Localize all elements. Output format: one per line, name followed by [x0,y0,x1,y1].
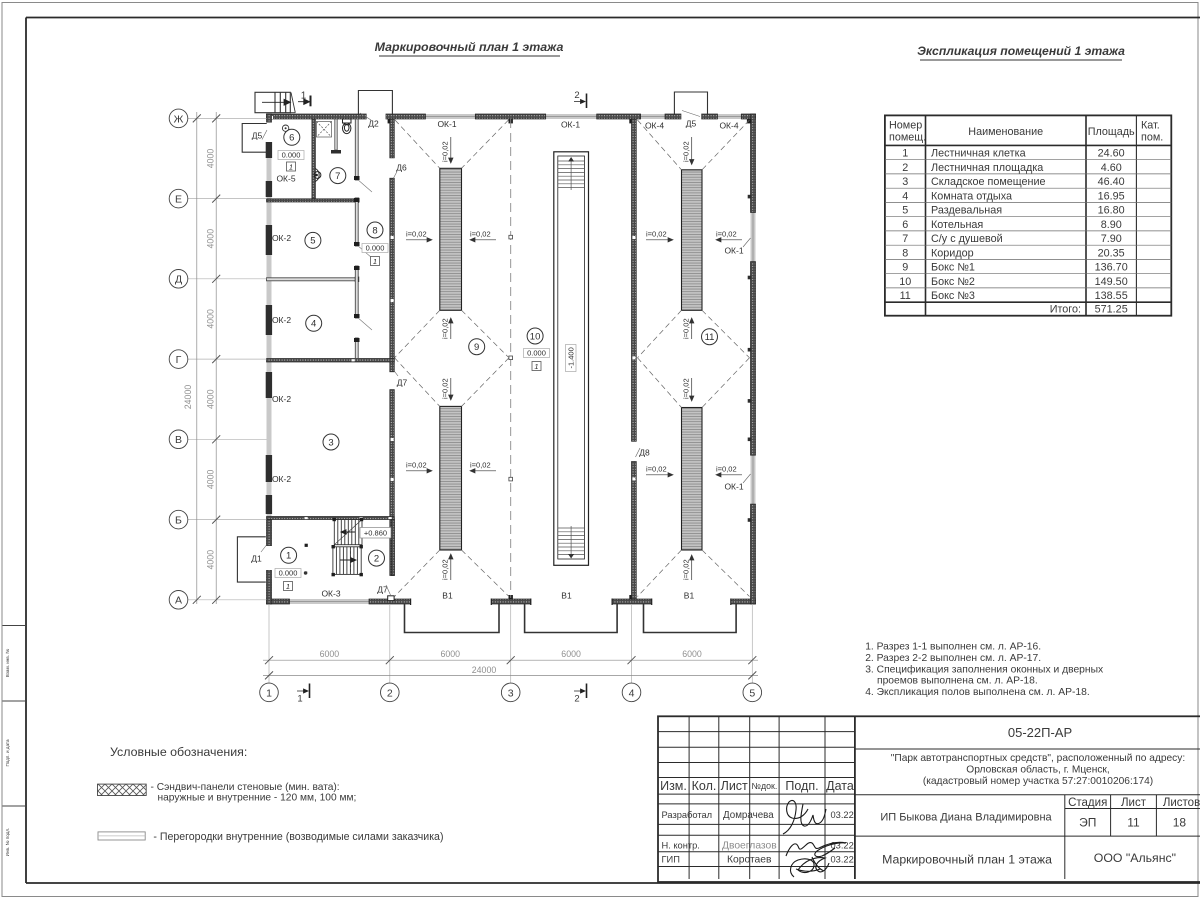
svg-text:В1: В1 [684,591,695,601]
svg-text:Г: Г [176,354,182,366]
svg-text:11: 11 [900,290,911,302]
svg-text:Д6: Д6 [396,163,407,173]
svg-text:6000: 6000 [320,649,340,659]
svg-text:3: 3 [902,176,908,188]
svg-text:ОК-1: ОК-1 [437,119,456,129]
svg-text:ОК-3: ОК-3 [321,589,340,599]
svg-text:"Парк автотранспортных средств: "Парк автотранспортных средств", располо… [891,753,1185,764]
svg-text:В: В [175,434,182,446]
svg-text:ОК-1: ОК-1 [724,482,743,492]
svg-text:2: 2 [574,694,579,705]
svg-text:2: 2 [374,553,379,564]
svg-text:46.40: 46.40 [1098,176,1125,188]
svg-text:1: 1 [289,162,293,171]
svg-text:пом.: пом. [1141,132,1163,144]
svg-text:ОК-2: ОК-2 [272,474,291,484]
svg-text:Д2: Д2 [368,119,379,129]
svg-text:Домрачева: Домрачева [723,810,774,821]
svg-text:8: 8 [902,247,908,259]
svg-text:Д7: Д7 [397,378,408,388]
svg-text:03.22: 03.22 [831,855,854,865]
svg-text:Д8: Д8 [639,448,650,458]
svg-text:Инв. № подл.: Инв. № подл. [5,828,10,857]
svg-text:Лестничная площадка: Лестничная площадка [931,162,1043,174]
svg-text:4: 4 [902,190,908,202]
svg-text:ОК-1: ОК-1 [561,120,580,130]
svg-text:8.90: 8.90 [1101,219,1122,231]
svg-text:Кол.: Кол. [692,779,717,793]
svg-text:В1: В1 [561,591,572,601]
svg-text:4.60: 4.60 [1101,162,1122,174]
svg-text:i=0,02: i=0,02 [406,461,427,470]
svg-text:i=0,02: i=0,02 [682,559,691,580]
svg-text:ОК-2: ОК-2 [272,394,291,404]
svg-text:Н. контр.: Н. контр. [662,841,700,851]
svg-text:0.000: 0.000 [527,349,546,358]
svg-text:Изм.: Изм. [660,779,687,793]
svg-text:1: 1 [373,257,377,266]
svg-text:138.55: 138.55 [1095,290,1128,302]
svg-text:ОК-2: ОК-2 [272,233,291,243]
svg-text:7: 7 [335,171,340,182]
svg-text:помещ.: помещ. [889,132,926,144]
svg-text:Лестничная клетка: Лестничная клетка [931,148,1026,160]
svg-text:5: 5 [749,687,755,699]
svg-text:Условные обозначения:: Условные обозначения: [110,745,247,759]
svg-text:Маркировочный план 1 этажа: Маркировочный план 1 этажа [882,853,1052,867]
svg-text:Бокс №3: Бокс №3 [931,290,975,302]
svg-text:Е: Е [175,194,182,206]
svg-text:-1.400: -1.400 [567,347,576,368]
svg-text:4000: 4000 [206,470,216,490]
svg-text:0.000: 0.000 [279,569,298,578]
svg-text:24000: 24000 [183,385,193,410]
svg-text:1: 1 [266,687,272,699]
svg-text:9: 9 [474,342,479,353]
svg-text:Комната отдыха: Комната отдыха [931,190,1012,202]
svg-text:Ж: Ж [174,113,184,125]
svg-text:i=0,02: i=0,02 [441,318,450,339]
svg-text:Подп.: Подп. [785,779,818,793]
svg-text:0.000: 0.000 [282,151,301,160]
svg-text:7: 7 [902,233,908,245]
svg-text:4. Экспликация полов выполнена: 4. Экспликация полов выполнена см. л. АР… [865,687,1090,698]
svg-text:№док.: №док. [752,781,778,791]
svg-text:i=0,02: i=0,02 [441,559,450,580]
svg-text:6: 6 [289,133,294,144]
svg-text:i=0,02: i=0,02 [682,141,691,162]
svg-text:1: 1 [286,582,290,591]
svg-text:11: 11 [1127,816,1140,830]
svg-text:Кат.: Кат. [1141,120,1160,132]
svg-text:ОК-1: ОК-1 [724,246,743,256]
svg-text:Лист: Лист [721,779,748,793]
svg-text:- Перегородки внутренние (возв: - Перегородки внутренние (возводимые сил… [153,831,443,843]
svg-text:11: 11 [705,332,715,343]
svg-text:Площадь: Площадь [1088,126,1135,138]
svg-text:Лист: Лист [1121,797,1147,809]
svg-text:24.60: 24.60 [1098,148,1125,160]
svg-text:3: 3 [328,437,333,448]
svg-text:ОК-4: ОК-4 [645,121,664,131]
svg-text:Взам. инв. №: Взам. инв. № [5,649,10,678]
svg-text:Коридор: Коридор [931,247,974,259]
svg-text:проемов выполнена см. л. АР-18: проемов выполнена см. л. АР-18. [877,675,1038,686]
svg-text:Наименование: Наименование [968,126,1043,138]
svg-text:- Сэндвич-панели стеновые (мин: - Сэндвич-панели стеновые (мин. вата): [151,782,340,793]
svg-text:2: 2 [387,687,393,699]
svg-text:Б: Б [175,515,182,527]
svg-text:наружные и внутренние - 120 мм: наружные и внутренние - 120 мм, 100 мм; [158,793,357,804]
svg-text:Котельная: Котельная [931,219,983,231]
svg-text:4000: 4000 [206,309,216,329]
svg-text:3. Спецификация заполнения око: 3. Спецификация заполнения оконных и две… [865,664,1104,676]
svg-text:i=0,02: i=0,02 [716,465,737,474]
svg-text:136.70: 136.70 [1095,262,1128,274]
svg-text:Стадия: Стадия [1068,797,1107,809]
svg-text:6000: 6000 [441,649,461,659]
svg-text:Бокс №1: Бокс №1 [931,262,975,274]
svg-text:4000: 4000 [206,149,216,169]
svg-text:1: 1 [286,551,291,562]
svg-text:6: 6 [902,219,908,231]
svg-text:4000: 4000 [206,389,216,409]
svg-text:i=0,02: i=0,02 [716,230,737,239]
svg-text:1: 1 [534,362,538,371]
svg-text:10: 10 [530,331,541,342]
svg-text:2: 2 [902,162,908,174]
svg-text:1: 1 [902,148,908,160]
svg-text:4: 4 [311,319,316,330]
svg-text:05-22П-АР: 05-22П-АР [1008,725,1072,740]
svg-text:4: 4 [629,687,635,699]
svg-text:3: 3 [508,687,514,699]
svg-text:10: 10 [899,276,911,288]
svg-text:5: 5 [902,205,908,217]
svg-text:1: 1 [297,694,302,705]
svg-text:Коротаев: Коротаев [727,855,772,866]
svg-text:16.80: 16.80 [1098,205,1125,217]
svg-text:Двоеглазов: Двоеглазов [722,841,777,852]
svg-text:+0.860: +0.860 [364,529,387,538]
svg-text:Д5: Д5 [252,131,263,141]
svg-text:i=0,02: i=0,02 [470,230,491,239]
svg-text:0.000: 0.000 [366,244,385,253]
svg-text:5: 5 [310,236,315,247]
svg-text:20.35: 20.35 [1098,247,1125,259]
svg-text:1. Разрез 1-1 выполнен см. л.: 1. Разрез 1-1 выполнен см. л. АР-16. [865,642,1041,653]
svg-text:ОК-5: ОК-5 [276,174,295,184]
svg-text:571.25: 571.25 [1095,304,1128,316]
svg-text:2: 2 [574,90,579,101]
svg-text:ИП Быкова Диана Владимировна: ИП Быкова Диана Владимировна [880,812,1052,824]
svg-text:ЭП: ЭП [1079,816,1096,830]
svg-text:ОК-2: ОК-2 [272,315,291,325]
svg-text:Листов: Листов [1163,797,1200,809]
svg-text:Дата: Дата [826,779,854,793]
svg-text:149.50: 149.50 [1095,276,1128,288]
svg-text:Орловская область, г. Мценск,: Орловская область, г. Мценск, [966,764,1109,776]
svg-text:Разработал: Разработал [662,810,713,820]
svg-text:7.90: 7.90 [1101,233,1122,245]
svg-text:6000: 6000 [561,649,581,659]
svg-text:03.22: 03.22 [831,810,854,820]
svg-text:9: 9 [902,262,908,274]
svg-text:Итого:: Итого: [1050,304,1081,316]
svg-text:18: 18 [1173,816,1187,830]
svg-text:i=0,02: i=0,02 [646,230,667,239]
svg-text:Д5: Д5 [686,119,697,129]
svg-text:ОК-4: ОК-4 [719,121,738,131]
svg-text:i=0,02: i=0,02 [441,378,450,399]
svg-text:2. Разрез 2-2 выполнен см. л.: 2. Разрез 2-2 выполнен см. л. АР-17. [865,653,1041,664]
svg-text:i=0,02: i=0,02 [406,230,427,239]
svg-text:ГИП: ГИП [662,855,680,865]
svg-text:Д: Д [175,274,182,286]
svg-text:А: А [175,595,182,607]
svg-text:6000: 6000 [682,649,702,659]
svg-text:(кадастровый номер участка 57:: (кадастровый номер участка 57:27:0010206… [923,776,1153,787]
svg-text:Д1: Д1 [251,554,262,564]
svg-text:4000: 4000 [206,550,216,570]
svg-text:8: 8 [372,225,377,236]
svg-text:16.95: 16.95 [1098,190,1125,202]
svg-text:В1: В1 [442,591,453,601]
svg-text:i=0,02: i=0,02 [682,318,691,339]
svg-text:i=0,02: i=0,02 [646,465,667,474]
svg-text:Подп. и дата: Подп. и дата [5,739,10,767]
svg-text:Складское помещение: Складское помещение [931,176,1046,188]
svg-text:С/у с душевой: С/у с душевой [931,233,1003,245]
svg-text:i=0,02: i=0,02 [441,141,450,162]
svg-text:Экспликация помещений 1 этажа: Экспликация помещений 1 этажа [917,44,1125,58]
svg-text:Маркировочный план 1 этажа: Маркировочный план 1 этажа [375,40,564,54]
svg-text:Раздевальная: Раздевальная [931,205,1002,217]
svg-text:Бокс №2: Бокс №2 [931,276,975,288]
svg-text:Номер: Номер [889,120,922,132]
svg-text:ООО "Альянс": ООО "Альянс" [1094,851,1176,865]
svg-text:i=0,02: i=0,02 [470,461,491,470]
svg-text:4000: 4000 [206,229,216,249]
svg-text:24000: 24000 [472,665,497,675]
